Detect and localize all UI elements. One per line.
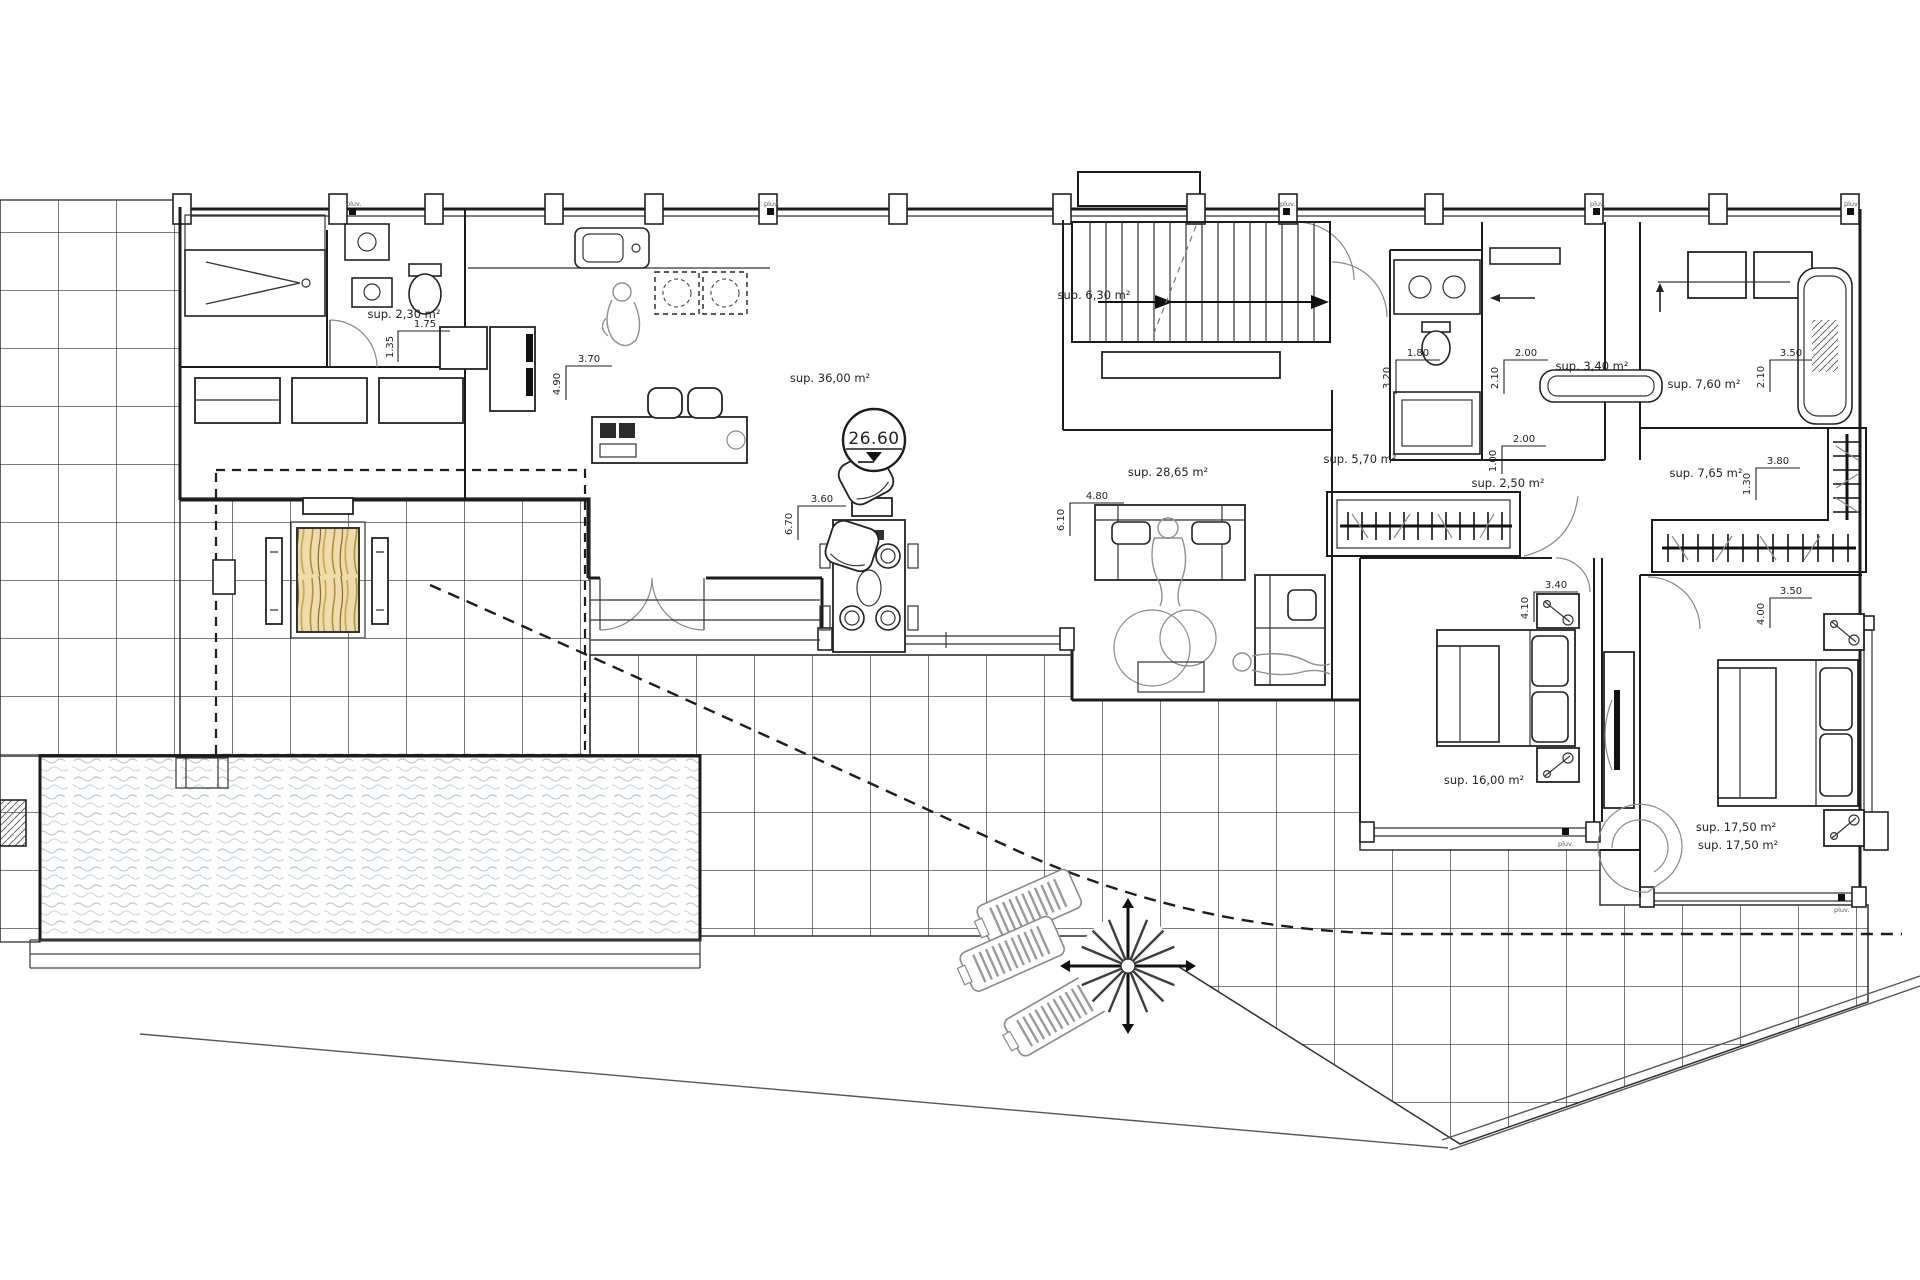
dim-dressing: 3.80 1.30 [1742,456,1800,500]
laundry-counter [185,215,325,250]
svg-text:pluv.: pluv. [1834,906,1849,914]
dim-bedroom2-h: 4.00 [1756,603,1767,625]
terrace-pool-side [0,756,40,942]
wc-sink [352,278,392,307]
dim-bath-b-h: 2.10 [1490,367,1501,389]
label-bedroom-2a: sup. 17,50 m² [1696,820,1776,834]
shower-tray [185,250,325,316]
roof-access-box [1078,172,1200,206]
sofa-cushion [1112,522,1150,544]
boiler-unit [345,224,389,260]
pool-outlet [0,800,26,846]
floor-plan-sheet: 26.60 sup. 2,30 m² sup. 36,00 m² sup. 6,… [0,0,1920,1280]
nightstand [1824,614,1864,650]
floor-plan-canvas: 26.60 sup. 2,30 m² sup. 36,00 m² sup. 6,… [0,0,1920,1280]
svg-text:pluv.: pluv. [1558,840,1573,848]
oven-appliance [703,272,747,314]
dim-closet-w: 2.00 [1513,434,1535,445]
pillow [1820,734,1852,796]
hall-closet [1327,492,1578,556]
bed-2-blanket [1718,668,1776,798]
dim-closet-h: 1.00 [1488,450,1499,472]
dim-bedroom-2: 3.50 4.00 [1756,586,1812,628]
bench-left [266,538,282,624]
bathroom-b [1656,252,1852,424]
nightstand [1537,594,1579,628]
label-lounge: sup. 28,65 m² [1128,465,1208,479]
kitchen [440,228,747,463]
bench-right [372,538,388,624]
terrace-paving [0,200,1868,1144]
flow-arrow-up [1656,283,1664,292]
sofa-cushion [1288,590,1316,620]
level-marker: 26.60 [843,409,905,471]
stair-arrow-end [1311,295,1329,309]
dim-bath-c-w: 3.50 [1780,348,1802,359]
bathroom-a [1490,248,1662,402]
dressing-closet [1652,428,1866,572]
dim-dining-w: 3.60 [811,494,833,505]
sofa-side [1255,575,1325,685]
svg-text:pluv.: pluv. [1844,200,1859,208]
swimming-pool [0,756,700,968]
bedroom-1 [1437,594,1579,782]
dim-closet: 2.00 1.00 [1488,434,1546,474]
entrance-door-arc [1296,222,1354,280]
pergola-post [213,560,235,594]
bar-stool [688,388,722,418]
closet-door-arc [1524,496,1578,556]
dim-bedroom1-w: 3.40 [1545,580,1567,591]
pillow [1532,636,1568,686]
pool-water [40,756,700,940]
pillow [1532,692,1568,742]
dim-lounge-h: 6.10 [1056,509,1067,531]
dim-bath-c-h: 2.10 [1756,366,1767,388]
bath-cabinet [1688,252,1746,298]
dim-kitchen-h: 4.90 [552,373,563,395]
dim-bedroom1-h: 4.10 [1520,597,1531,619]
bed-1-blanket [1437,646,1499,742]
storage-cabinets [195,378,463,423]
bench-top [303,498,353,514]
dim-dressing-w: 3.80 [1767,456,1789,467]
terrace-pergola [180,498,590,756]
corridor-double-wall [1605,222,1640,460]
label-kitchen-living: sup. 36,00 m² [790,371,870,385]
dim-bath-a-h: 3.20 [1382,367,1393,389]
bedroom2-south-window [1640,887,1866,907]
site-line-south [140,1034,1448,1148]
dim-bedroom2-w: 3.50 [1780,586,1802,597]
label-dressing: sup. 7,65 m² [1670,466,1743,480]
sofa-cushion [1192,522,1230,544]
label-hall-closet: sup. 2,50 m² [1472,476,1545,490]
person-cooking [602,283,639,346]
bar-stool [648,388,682,418]
dim-lounge-w: 4.80 [1086,491,1108,502]
dim-bath-a-w: 1.80 [1407,348,1429,359]
label-bedroom-2b: sup. 17,50 m² [1698,838,1778,852]
nightstand [1824,810,1864,846]
svg-text:pluv.: pluv. [346,200,361,208]
label-bathroom-a: sup. 3,40 m² [1556,359,1629,373]
dining-set [820,498,918,652]
flow-arrow [1490,294,1500,302]
bathtub-a [1540,370,1662,402]
understairs-cabinet [1102,352,1280,378]
pillow [1820,668,1852,730]
nightstand [1537,748,1579,782]
stair-treads [1090,222,1314,342]
hall-door-arc [1332,262,1387,317]
sofa-main [1095,505,1245,580]
dim-kitchen: 3.70 4.90 [552,354,612,400]
dim-dining-h: 6.70 [784,513,795,535]
terrace-pillar [1864,812,1888,850]
svg-text:pluv.: pluv. [764,200,779,208]
double-sink-counter [1394,260,1480,314]
dim-wc-h: 1.35 [385,336,396,358]
dim-wc-w: 1.75 [414,319,436,330]
drain-marker: pluv. [346,200,361,215]
dim-bath-b-w: 2.00 [1515,348,1537,359]
label-stairs: sup. 6,30 m² [1058,288,1131,302]
label-bedroom-1: sup. 16,00 m² [1444,773,1524,787]
svg-text:pluv.: pluv. [1280,200,1295,208]
drain-marker: pluv. [1558,828,1573,848]
cooktop-appliance [655,272,699,314]
shower-tray [1394,392,1480,454]
label-hall: sup. 5,70 m² [1324,452,1397,466]
coffee-tables [1114,610,1216,692]
drain-marker: pluv. [1834,894,1849,914]
stair-break-line [1152,226,1196,338]
bedroom2-door-arc [1648,577,1700,629]
level-value: 26.60 [848,429,899,449]
kitchen-french-doors [600,578,704,630]
svg-text:pluv.: pluv. [1590,200,1605,208]
vanity-shelf [1490,248,1560,264]
dim-dressing-h: 1.30 [1742,473,1753,495]
wc-door-arc [330,320,377,367]
terrace-west [0,200,180,756]
dim-kitchen-w: 3.70 [578,354,600,365]
label-bathroom-b: sup. 7,60 m² [1668,377,1741,391]
pool-deck-steps [30,940,700,968]
fridge-column [440,327,487,369]
